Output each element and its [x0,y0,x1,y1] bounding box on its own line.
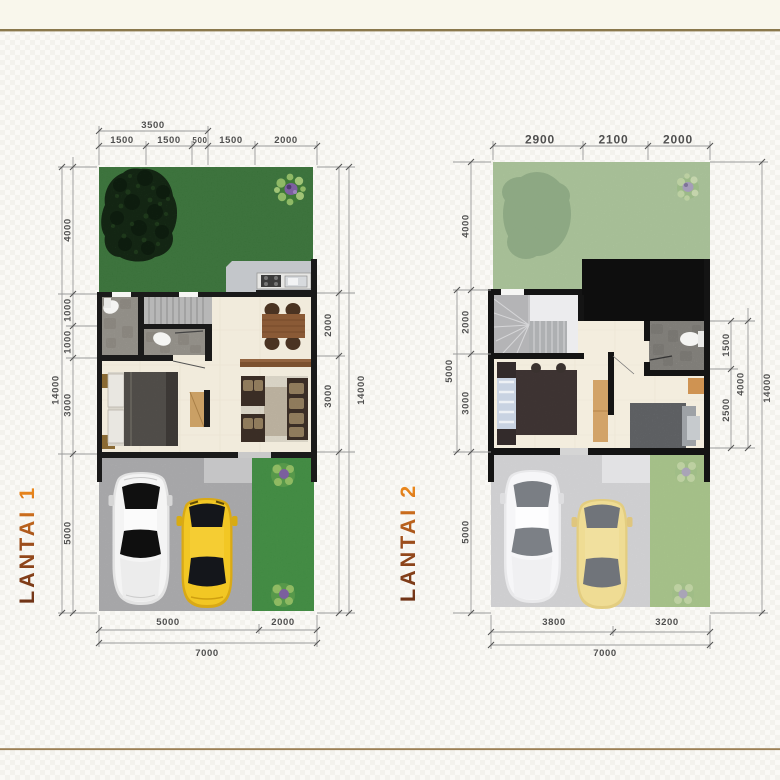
svg-text:500: 500 [192,136,207,145]
svg-text:2900: 2900 [525,133,555,147]
svg-text:4000: 4000 [461,214,472,238]
svg-text:1000: 1000 [63,330,74,354]
svg-text:5000: 5000 [444,359,455,383]
svg-text:2100: 2100 [599,133,629,147]
svg-text:3500: 3500 [141,120,165,131]
svg-text:14000: 14000 [762,373,773,402]
svg-text:1500: 1500 [219,135,243,146]
svg-text:14000: 14000 [356,375,367,404]
svg-text:4000: 4000 [736,372,747,396]
svg-text:14000: 14000 [51,375,62,404]
svg-text:1000: 1000 [63,298,74,322]
svg-text:3800: 3800 [542,617,566,628]
svg-text:5000: 5000 [63,521,74,545]
svg-text:2000: 2000 [271,617,295,628]
svg-text:5000: 5000 [156,617,180,628]
svg-text:3200: 3200 [655,617,679,628]
svg-text:4000: 4000 [63,218,74,242]
svg-text:2500: 2500 [721,398,732,422]
svg-text:1500: 1500 [157,135,181,146]
svg-text:2000: 2000 [663,133,693,147]
svg-text:3000: 3000 [63,393,74,417]
svg-text:2000: 2000 [323,313,334,337]
svg-text:7000: 7000 [593,648,617,659]
svg-text:2000: 2000 [274,135,298,146]
svg-text:1500: 1500 [721,333,732,357]
svg-text:LANTAI 1: LANTAI 1 [15,485,39,604]
svg-text:7000: 7000 [195,648,219,659]
svg-text:3000: 3000 [323,384,334,408]
svg-text:2000: 2000 [461,310,472,334]
svg-text:1500: 1500 [110,135,134,146]
svg-text:5000: 5000 [461,520,472,544]
svg-text:LANTAI 2: LANTAI 2 [396,483,420,602]
svg-text:3000: 3000 [461,391,472,415]
